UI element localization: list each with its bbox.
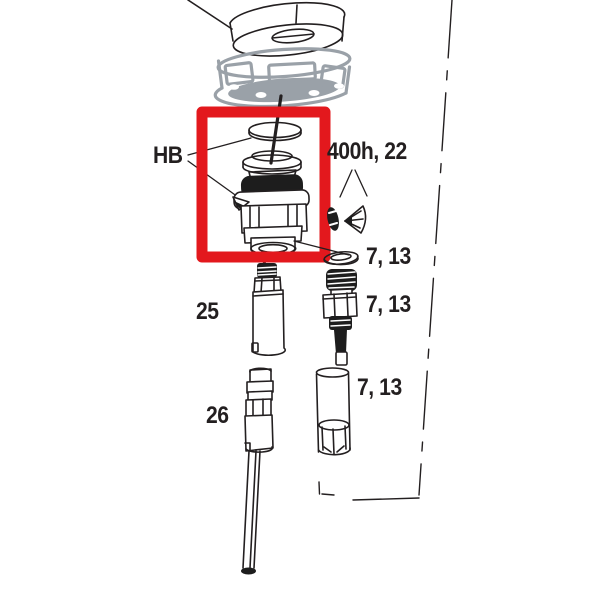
diagram-artwork xyxy=(0,0,615,612)
callout-hb: HB xyxy=(153,144,183,168)
part-sleeve-7-13 xyxy=(317,368,351,455)
caret-400h xyxy=(340,170,367,197)
callout-400h-22: 400h, 22 xyxy=(327,140,407,164)
part-26-shaft xyxy=(241,368,273,574)
leader-line-top xyxy=(188,0,232,29)
callout-7-13-sleeve: 7, 13 xyxy=(357,376,402,400)
part-bolt-7-13 xyxy=(323,269,357,365)
part-hb-assembly xyxy=(233,151,309,267)
callout-25: 25 xyxy=(196,300,219,324)
part-25-cylinder xyxy=(252,263,285,355)
part-cone xyxy=(345,206,366,233)
callout-7-13-washer: 7, 13 xyxy=(366,245,411,269)
callout-7-13-bolt: 7, 13 xyxy=(366,293,411,317)
part-top-knob xyxy=(230,3,345,61)
callout-26: 26 xyxy=(206,404,229,428)
parts-diagram-page: HB 400h, 22 7, 13 7, 13 7, 13 25 26 xyxy=(0,0,615,612)
part-gray-drum xyxy=(215,45,351,107)
